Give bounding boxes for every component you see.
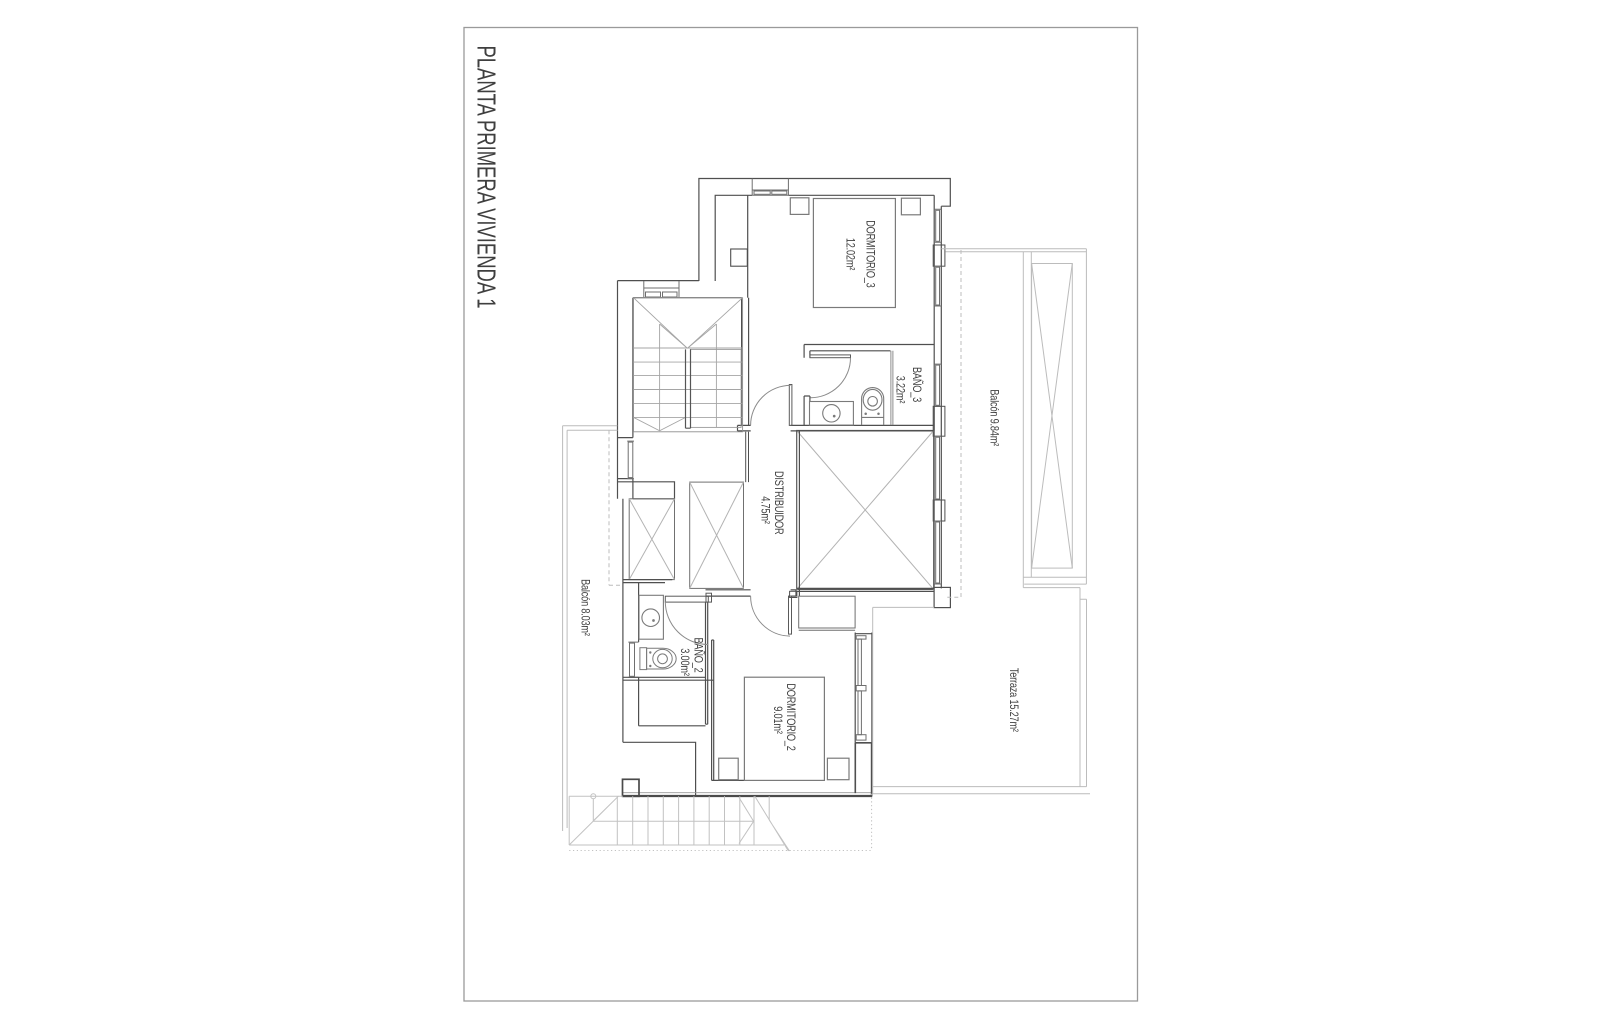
svg-text:DISTRIBUIDOR: DISTRIBUIDOR — [772, 471, 785, 535]
svg-text:BAÑO_3: BAÑO_3 — [909, 367, 924, 402]
svg-text:3.22m²: 3.22m² — [893, 376, 906, 404]
svg-text:Terraza 15.27m²: Terraza 15.27m² — [1007, 668, 1020, 732]
svg-text:PLANTA PRIMERA VIVIENDA 1: PLANTA PRIMERA VIVIENDA 1 — [472, 46, 501, 309]
svg-text:DORMITORIO_3: DORMITORIO_3 — [863, 220, 876, 288]
svg-text:9.01m²: 9.01m² — [770, 706, 783, 734]
svg-text:Balcón 8.03m²: Balcón 8.03m² — [578, 579, 591, 636]
svg-text:4.75m²: 4.75m² — [758, 496, 771, 524]
svg-text:Balcón 9.84m²: Balcón 9.84m² — [987, 389, 1000, 446]
svg-text:DORMITORIO_2: DORMITORIO_2 — [783, 683, 796, 751]
svg-text:3.00m²: 3.00m² — [678, 648, 691, 676]
svg-text:BAÑO_2: BAÑO_2 — [691, 637, 706, 672]
svg-text:12.02m²: 12.02m² — [843, 238, 856, 271]
